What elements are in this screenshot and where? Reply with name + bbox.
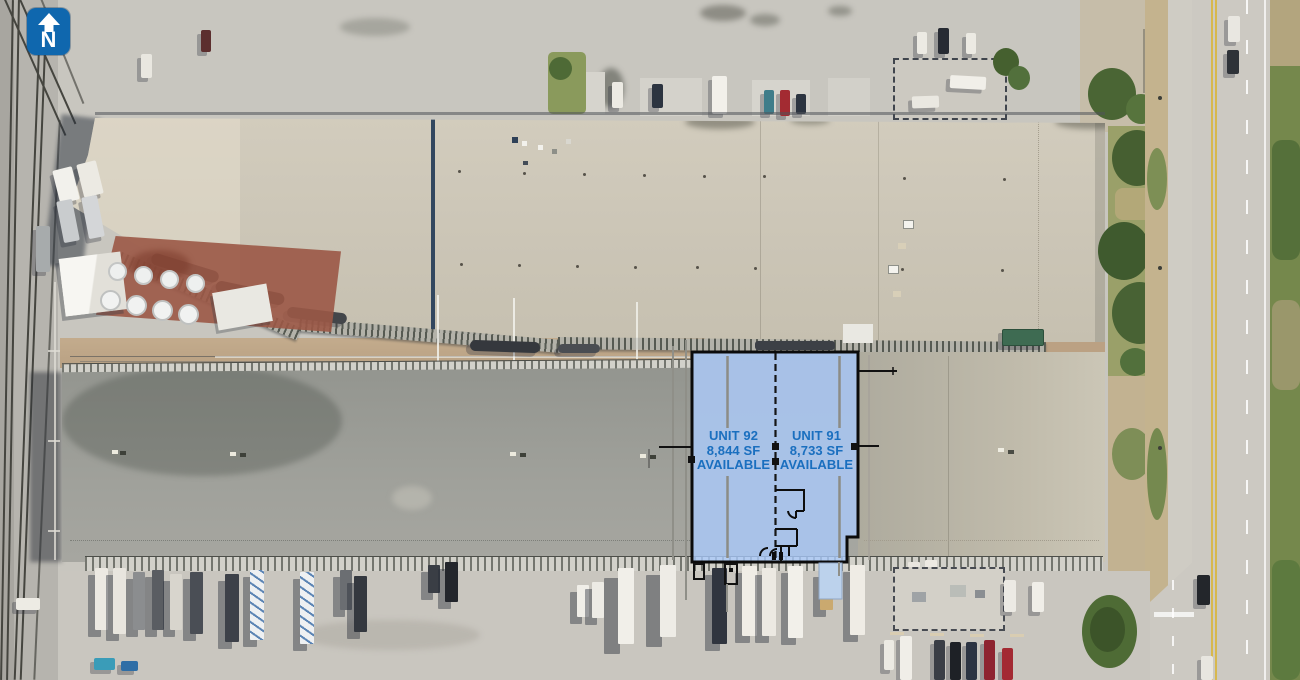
unit-91-label: UNIT 91 8,733 SF AVAILABLE	[775, 429, 858, 473]
unit-status: AVAILABLE	[775, 458, 858, 473]
unit-91-region[interactable]: UNIT 91 8,733 SF AVAILABLE	[775, 352, 858, 562]
north-arrow-head	[38, 13, 60, 25]
north-arrow-icon: N	[27, 8, 70, 55]
unit-92-label: UNIT 92 8,844 SF AVAILABLE	[692, 429, 775, 473]
unit-name: UNIT 91	[775, 429, 858, 444]
unit-area: 8,733 SF	[775, 444, 858, 459]
unit-name: UNIT 92	[692, 429, 775, 444]
aerial-site-plan: UNIT 92 8,844 SF AVAILABLE UNIT 91 8,733…	[0, 0, 1300, 680]
north-letter: N	[27, 27, 70, 53]
unit-area: 8,844 SF	[692, 444, 775, 459]
unit-92-region[interactable]: UNIT 92 8,844 SF AVAILABLE	[692, 352, 775, 562]
unit-status: AVAILABLE	[692, 458, 775, 473]
availability-plan-svg	[0, 0, 1300, 680]
